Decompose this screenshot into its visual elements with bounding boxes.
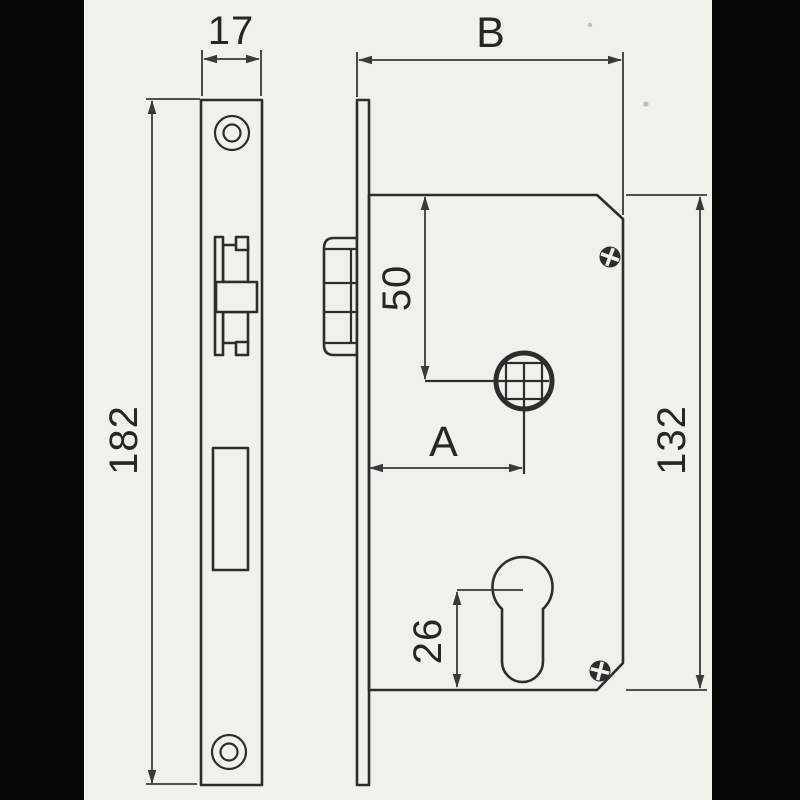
dim-label-b: B (476, 9, 506, 57)
dim-label-26: 26 (406, 618, 450, 665)
photo-speck (588, 23, 592, 27)
dim-label-50: 50 (375, 265, 419, 312)
technical-drawing-photo: 17 B 182 50 A 132 26 (0, 0, 800, 800)
right-matte-bar (712, 0, 800, 800)
photo-speck (643, 101, 648, 106)
side-faceplate (357, 100, 369, 785)
dim-label-17: 17 (208, 9, 255, 53)
dim-label-182: 182 (102, 405, 146, 475)
dim-label-a: A (429, 418, 459, 466)
side-latch-bolt (324, 238, 357, 355)
mortise-lock-diagram: 17 B 182 50 A 132 26 (0, 0, 800, 800)
dim-label-132: 132 (650, 405, 694, 475)
left-matte-bar (0, 0, 84, 800)
paper-background (84, 0, 712, 800)
